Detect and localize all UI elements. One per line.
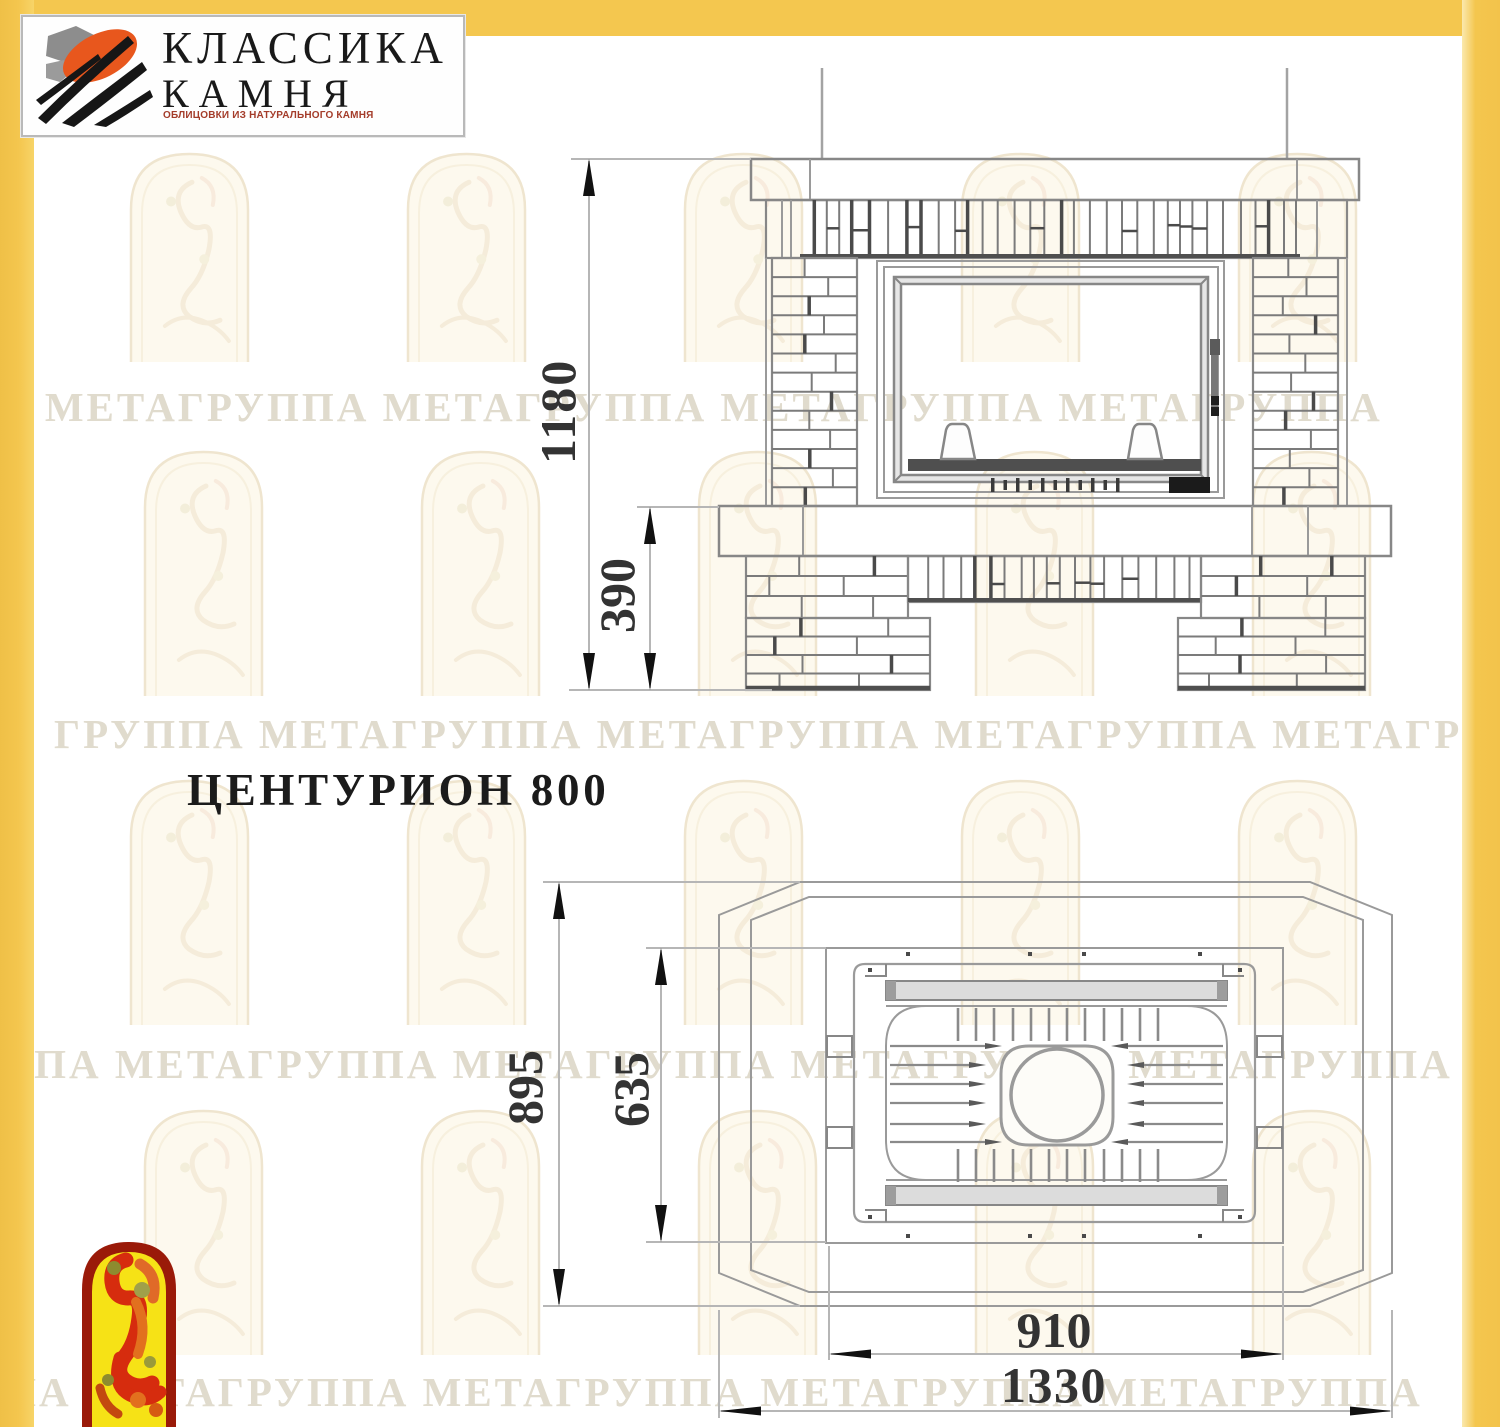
svg-text:910: 910 (1017, 1302, 1092, 1358)
svg-text:1330: 1330 (1001, 1357, 1107, 1413)
svg-text:635: 635 (603, 1052, 659, 1127)
svg-text:895: 895 (497, 1050, 553, 1125)
